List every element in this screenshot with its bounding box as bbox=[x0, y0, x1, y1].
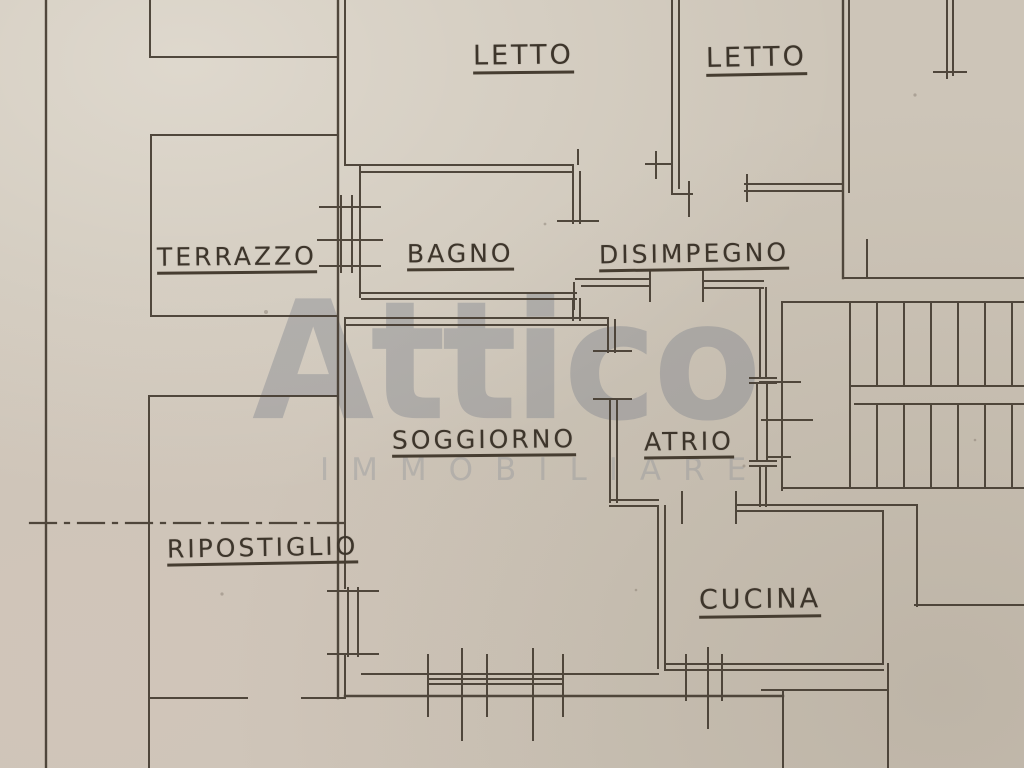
paper-specks bbox=[220, 93, 976, 595]
room-label-soggiorno: SOGGIORNO bbox=[392, 426, 576, 458]
wall-atrio bbox=[594, 288, 766, 506]
room-label-terrazzo: TERRAZZO bbox=[157, 243, 317, 274]
room-label-disimpegno: DISIMPEGNO bbox=[599, 240, 789, 273]
staircase bbox=[760, 302, 1024, 490]
room-label-letto-2: LETTO bbox=[706, 43, 807, 77]
wall-top-right bbox=[845, 0, 1024, 278]
room-label-cucina: CUCINA bbox=[699, 585, 821, 618]
room-label-atrio: ATRIO bbox=[644, 429, 734, 460]
window-cucina-symbol bbox=[686, 648, 722, 728]
wall-left-structure bbox=[46, 0, 345, 768]
entrance-door-symbol bbox=[750, 378, 776, 506]
wall-bagno-disimpegno bbox=[362, 271, 763, 320]
room-label-letto-1: LETTO bbox=[473, 41, 574, 74]
wall-soggiorno-top bbox=[345, 318, 608, 325]
wall-letto1 bbox=[345, 150, 598, 223]
floor-plan-linework bbox=[0, 0, 1024, 768]
wall-cucina bbox=[658, 492, 1024, 668]
window-terrazzo-bagno-symbol bbox=[318, 196, 382, 272]
room-label-bagno: BAGNO bbox=[407, 241, 514, 272]
window-soggiorno-symbol bbox=[428, 649, 563, 740]
wall-bottom-exterior bbox=[345, 664, 888, 768]
room-label-ripostiglio: RIPOSTIGLIO bbox=[167, 533, 359, 566]
window-ripostiglio-symbol bbox=[328, 588, 378, 656]
floor-plan-page: Attico IMMOBILIARE bbox=[0, 0, 1024, 768]
